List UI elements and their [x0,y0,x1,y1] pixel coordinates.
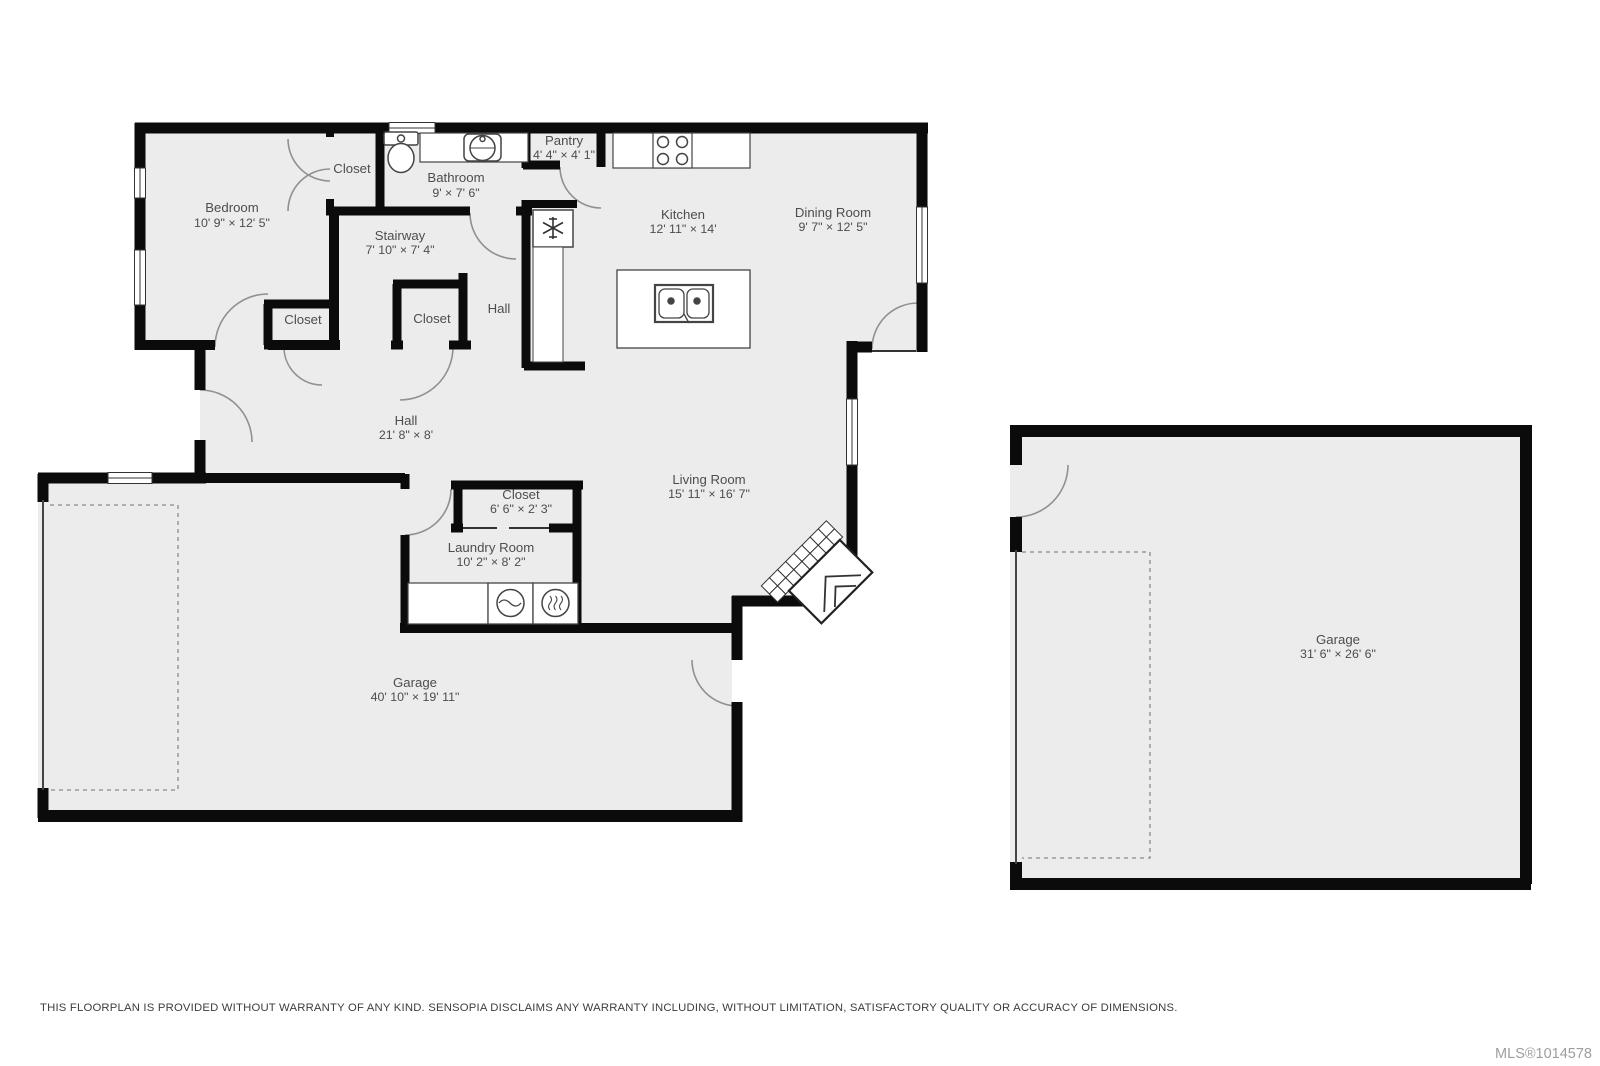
dining-dims: 9' 7" × 12' 5" [799,220,868,234]
dryer-icon [533,583,578,624]
pantry-dims: 4' 4" × 4' 1" [533,148,595,162]
bedroom-label: Bedroom [205,200,259,215]
pantry-label: Pantry [545,133,584,148]
floorplan-page: Bedroom 10' 9" × 12' 5" Closet Bathroom … [0,0,1600,1066]
garage-main-dims: 40' 10" × 19' 11" [371,690,460,704]
hall-upper-label: Hall [488,301,511,316]
floorplan-drawing: Bedroom 10' 9" × 12' 5" Closet Bathroom … [0,0,1600,1066]
hall-main-dims: 21' 8" × 8' [379,428,433,442]
laundry-dims: 10' 2" × 8' 2" [457,555,526,569]
stairway-label: Stairway [375,228,426,243]
kitchen-dims: 12' 11" × 14' [649,222,716,236]
disclaimer-text: THIS FLOORPLAN IS PROVIDED WITHOUT WARRA… [40,1002,1178,1014]
garage-main-label: Garage [393,675,437,690]
hall-main-label: Hall [395,413,418,428]
stairway-dims: 7' 10" × 7' 4" [366,243,435,257]
bathroom-label: Bathroom [427,170,484,185]
dining-label: Dining Room [795,205,871,220]
washer-icon [488,583,533,624]
living-dims: 15' 11" × 16' 7" [668,487,750,501]
laundry-counter [408,583,488,624]
laundry-closet-label: Closet [502,487,540,502]
floor-areas [38,123,1531,884]
living-label: Living Room [672,472,745,487]
window-bedroom-lower [135,250,146,305]
kitchen-label: Kitchen [661,207,705,222]
laundry-label: Laundry Room [448,540,535,555]
window-living-right [847,399,858,465]
bathroom-dims: 9' × 7' 6" [432,186,479,200]
island-sink-icon [617,270,750,348]
garage-detached-dims: 31' 6" × 26' 6" [1300,647,1376,661]
window-garage-front [108,473,152,484]
bedroom-closet-label: Closet [333,161,371,176]
closet-left-label: Closet [284,312,322,327]
bathroom-sink-icon [420,133,528,162]
window-bedroom-upper [135,168,146,198]
bedroom-dims: 10' 9" × 12' 5" [194,216,270,230]
mls-number: MLS®1014578 [1495,1046,1592,1062]
window-dining-right [917,207,928,283]
garage-detached-label: Garage [1316,632,1360,647]
closet-mid-label: Closet [413,311,451,326]
detached-garage-floor-area [1010,425,1531,884]
laundry-closet-dims: 6' 6" × 2' 3" [490,502,552,516]
stove-icon [613,133,750,168]
